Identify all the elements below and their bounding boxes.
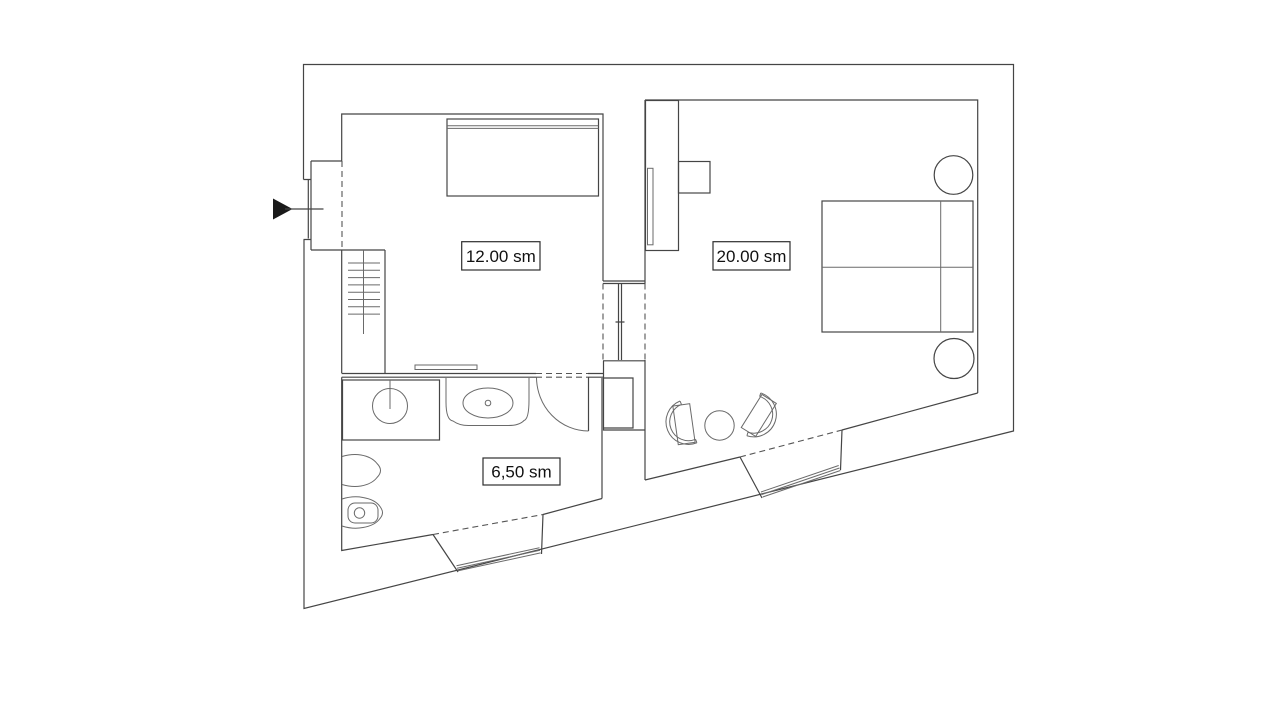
door-leaf-closed [616,284,625,361]
wall-shelf [415,365,477,370]
outer-wall-outline [304,65,1014,609]
bathroom-area-label: 6,50 sm [483,458,560,485]
bedroom-label-text: 20.00 sm [717,247,787,266]
round-nightstand-bottom [934,339,974,379]
hall-closet [604,361,646,430]
toilet [342,455,381,487]
washbasin-bowl-icon [463,388,513,418]
bathroom-door-opening-dashed [536,374,588,378]
entrance [273,161,385,250]
armchair-left [659,398,704,451]
armchair-right [739,390,782,442]
bidet [342,497,383,528]
vanity-counter [343,380,440,440]
floor-plan-drawing: 12.00 sm 20.00 sm 6,50 sm [0,0,1280,720]
bathroom [342,374,603,573]
bed-outline [822,201,973,332]
armchair-back-arc [747,393,782,443]
living-room-area-label: 12.00 sm [462,242,540,270]
armchair-seat [741,394,776,436]
bathroom-walls [342,377,602,550]
bathroom-door [537,377,589,431]
wardrobe-outline [646,101,679,251]
interior-door [603,281,645,361]
bathroom-top-wall [342,374,603,378]
side-table [679,162,711,194]
living-room-label-text: 12.00 sm [466,247,536,266]
vestibule-walls [311,161,385,250]
toilet-icon [342,455,381,487]
bidet-bowl [348,503,378,523]
bedroom-area-label: 20.00 sm [713,242,790,270]
wardrobe-door-panel [648,168,654,245]
staircase [342,250,385,373]
bathroom-door-swing-arc [537,377,589,431]
round-nightstand-top [934,156,973,195]
bidet-drain-dot [354,508,364,518]
armchair-seat [673,404,695,445]
double-bed [822,201,973,332]
bedroom-window-glazing [761,466,840,498]
wardrobe [646,101,679,251]
bed-mattress-lines [822,201,973,332]
floor-plan: 12.00 sm 20.00 sm 6,50 sm [0,0,1280,720]
washbasin [446,378,529,426]
outer-walls [304,65,1014,609]
sofa-bed [447,119,599,196]
sofa-bed-outline [447,119,599,196]
bathroom-window-jambs [433,515,543,573]
sofa-bed-backrest-lines [447,126,599,129]
closet-inner-box [604,378,633,428]
bedroom-walls [645,100,978,480]
bedroom [645,100,978,498]
bedroom-bottom-walls [645,393,978,480]
bedroom-window-opening-dashed [740,430,842,457]
area-labels: 12.00 sm 20.00 sm 6,50 sm [462,242,790,485]
bathroom-label-text: 6,50 sm [491,463,551,482]
coffee-table [705,411,734,440]
washbasin-drain-dot [485,400,491,406]
closet-outer-walls [604,361,646,430]
doorway-head-lines [603,281,645,284]
bathroom-window-opening-dashed [433,515,543,535]
